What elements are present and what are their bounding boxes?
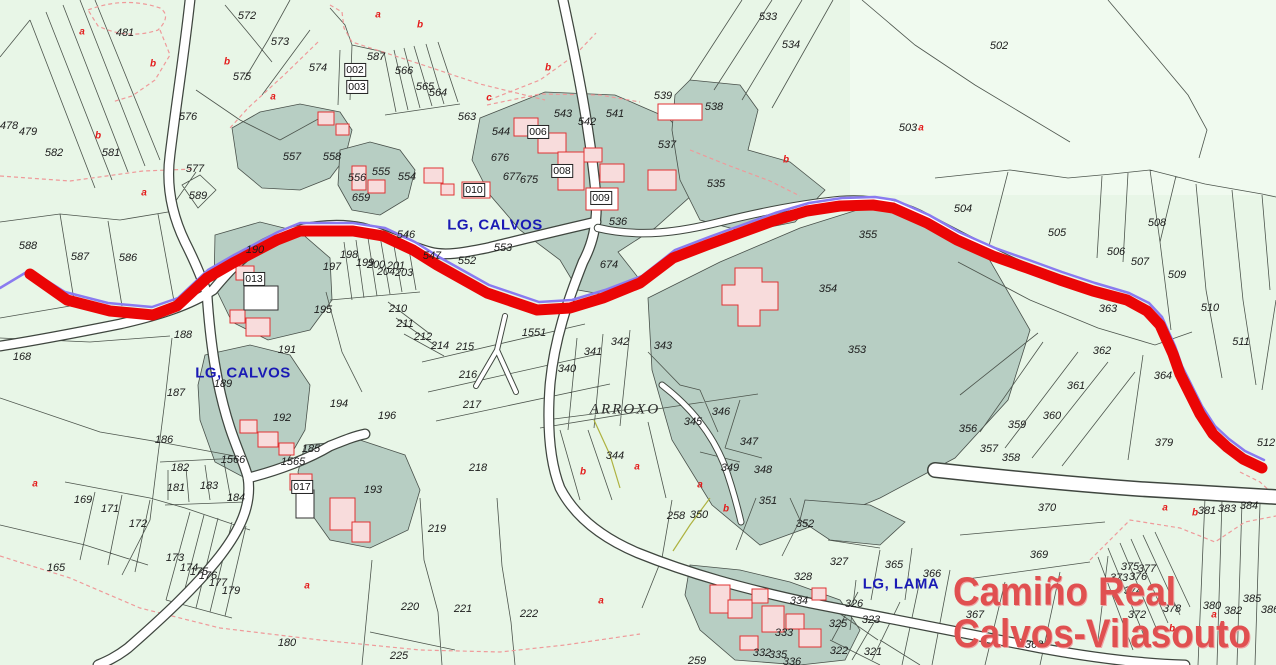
parcel-number: 582	[45, 147, 63, 159]
parcel-number: 173	[166, 552, 184, 564]
parcel-number: 217	[463, 399, 481, 411]
parcel-number: 1566	[221, 454, 245, 466]
building-number: 009	[590, 191, 612, 205]
parcel-number: 535	[707, 178, 725, 190]
parcel-number: 216	[459, 369, 477, 381]
parcel-number: 193	[364, 484, 382, 496]
parcel-number: 539	[654, 90, 672, 102]
parcel-number: 565	[416, 81, 434, 93]
parcel-number: 507	[1131, 256, 1149, 268]
parcel-number: 586	[119, 252, 137, 264]
parcel-number: 219	[428, 523, 446, 535]
parcel-number: 554	[398, 171, 416, 183]
parcel-number: 172	[129, 518, 147, 530]
route-title-line2: Calvos-Vilasouto	[953, 612, 1251, 657]
parcel-number: 510	[1201, 302, 1219, 314]
parcel-number: 381	[1198, 505, 1216, 517]
parcel-number: 171	[101, 503, 119, 515]
parcel-number: 572	[238, 10, 256, 22]
parcel-number: 192	[273, 412, 291, 424]
parcel-number: 587	[71, 251, 89, 263]
parcel-number: 534	[782, 39, 800, 51]
parcel-number: 175	[190, 566, 208, 578]
zone-letter: b	[150, 59, 156, 70]
parcel-number: 351	[759, 495, 777, 507]
parcel-number: 509	[1168, 269, 1186, 281]
parcel-number: 196	[378, 410, 396, 422]
parcel-number: 360	[1043, 410, 1061, 422]
parcel-number: 674	[600, 259, 618, 271]
zone-letter: b	[580, 467, 586, 478]
parcel-number: 333	[775, 627, 793, 639]
parcel-number: 353	[848, 344, 866, 356]
parcel-number: 346	[712, 406, 730, 418]
parcel-number: 502	[990, 40, 1008, 52]
parcel-number: 326	[845, 598, 863, 610]
parcel-number: 225	[390, 650, 408, 662]
parcel-number: 165	[47, 562, 65, 574]
parcel-number: 343	[654, 340, 672, 352]
map-labels-layer: 5725735745755765774814784795825815575585…	[0, 0, 1276, 665]
route-title-line1: Camiño Real	[953, 570, 1176, 615]
parcel-number: 221	[454, 603, 472, 615]
parcel-number: 204	[377, 266, 395, 278]
parcel-number: 505	[1048, 227, 1066, 239]
parcel-number: 344	[606, 450, 624, 462]
parcel-number: 356	[959, 423, 977, 435]
parcel-number: 577	[186, 163, 204, 175]
parcel-number: 184	[227, 492, 245, 504]
parcel-number: 564	[429, 87, 447, 99]
parcel-number: 321	[864, 646, 882, 658]
parcel-number: 1551	[522, 327, 546, 339]
building-number: 013	[243, 272, 265, 286]
parcel-number: 558	[323, 151, 341, 163]
parcel-number: 675	[520, 174, 538, 186]
parcel-number: 185	[302, 443, 320, 455]
parcel-number: 258	[667, 510, 685, 522]
parcel-number: 365	[885, 559, 903, 571]
parcel-number: 537	[658, 139, 676, 151]
parcel-number: 334	[790, 595, 808, 607]
parcel-number: 506	[1107, 246, 1125, 258]
zone-letter: a	[634, 462, 640, 473]
parcel-number: 259	[688, 655, 706, 665]
parcel-number: 542	[578, 116, 596, 128]
zone-letter: b	[95, 131, 101, 142]
parcel-number: 541	[606, 108, 624, 120]
building-number: 003	[346, 80, 368, 94]
parcel-number: 187	[167, 387, 185, 399]
zone-letter: a	[918, 123, 924, 134]
parcel-number: 212	[414, 331, 432, 343]
parcel-number: 177	[209, 577, 227, 589]
building-number: 017	[291, 480, 313, 494]
parcel-number: 659	[352, 192, 370, 204]
parcel-number: 575	[233, 71, 251, 83]
zone-letter: b	[1192, 508, 1198, 519]
parcel-number: 345	[684, 416, 702, 428]
parcel-number: 201	[387, 260, 405, 272]
parcel-number: 215	[456, 341, 474, 353]
parcel-number: 589	[189, 190, 207, 202]
parcel-number: 197	[323, 261, 341, 273]
cadastral-map: 5725735745755765774814784795825815575585…	[0, 0, 1276, 665]
parcel-number: 210	[389, 303, 407, 315]
parcel-number: 576	[179, 111, 197, 123]
parcel-number: 566	[395, 65, 413, 77]
parcel-number: 352	[796, 518, 814, 530]
parcel-number: 328	[794, 571, 812, 583]
parcel-number: 325	[829, 618, 847, 630]
parcel-number: 189	[214, 378, 232, 390]
parcel-number: 180	[278, 637, 296, 649]
parcel-number: 348	[754, 464, 772, 476]
parcel-number: 198	[340, 249, 358, 261]
zone-letter: b	[723, 504, 729, 515]
parcel-number: 544	[492, 126, 510, 138]
parcel-number: 588	[19, 240, 37, 252]
zone-letter: c	[486, 93, 492, 104]
parcel-number: 362	[1093, 345, 1111, 357]
parcel-number: 677	[503, 171, 521, 183]
parcel-number: 481	[116, 27, 134, 39]
parcel-number: 366	[923, 568, 941, 580]
building-number: 002	[344, 63, 366, 77]
parcel-number: 332	[753, 647, 771, 659]
parcel-number: 335	[769, 649, 787, 661]
parcel-number: 347	[740, 436, 758, 448]
parcel-number: 211	[396, 318, 414, 330]
parcel-number: 191	[278, 344, 296, 356]
parcel-number: 478	[0, 120, 18, 132]
zone-letter: a	[375, 10, 381, 21]
building-number: 006	[527, 125, 549, 139]
parcel-number: 354	[819, 283, 837, 295]
parcel-number: 369	[1030, 549, 1048, 561]
parcel-number: 547	[423, 250, 441, 262]
parcel-number: 195	[314, 304, 332, 316]
parcel-number: 218	[469, 462, 487, 474]
parcel-number: 380	[1203, 600, 1221, 612]
place-label: LG, CALVOS	[195, 365, 291, 382]
zone-letter: a	[697, 480, 703, 491]
parcel-number: 536	[609, 216, 627, 228]
parcel-number: 508	[1148, 217, 1166, 229]
parcel-number: 581	[102, 147, 120, 159]
parcel-number: 361	[1067, 380, 1085, 392]
zone-letter: a	[79, 27, 85, 38]
place-label: LG, LAMA	[863, 576, 940, 593]
parcel-number: 587	[367, 51, 385, 63]
parcel-number: 188	[174, 329, 192, 341]
zone-letter: a	[32, 479, 38, 490]
parcel-number: 322	[830, 645, 848, 657]
parcel-number: 538	[705, 101, 723, 113]
parcel-number: 336	[783, 656, 801, 665]
parcel-number: 174	[180, 562, 198, 574]
parcel-number: 370	[1038, 502, 1056, 514]
parcel-number: 512	[1257, 437, 1275, 449]
zone-letter: b	[417, 20, 423, 31]
parcel-number: 194	[330, 398, 348, 410]
parcel-number: 503	[899, 122, 917, 134]
parcel-number: 349	[721, 462, 739, 474]
zone-letter: a	[304, 581, 310, 592]
parcel-number: 385	[1243, 593, 1261, 605]
parcel-number: 364	[1154, 370, 1172, 382]
parcel-number: 350	[690, 509, 708, 521]
parcel-number: 676	[491, 152, 509, 164]
zone-letter: b	[545, 63, 551, 74]
parcel-number: 340	[558, 363, 576, 375]
zone-letter: a	[141, 188, 147, 199]
parcel-number: 181	[167, 482, 185, 494]
parcel-number: 383	[1218, 503, 1236, 515]
place-label: LG, CALVOS	[447, 217, 543, 234]
parcel-number: 379	[1155, 437, 1173, 449]
parcel-number: 358	[1002, 452, 1020, 464]
parcel-number: 573	[271, 36, 289, 48]
parcel-number: 546	[397, 229, 415, 241]
parcel-number: 363	[1099, 303, 1117, 315]
parcel-number: 186	[155, 434, 173, 446]
parcel-number: 386	[1261, 604, 1276, 616]
zone-letter: a	[270, 92, 276, 103]
building-number: 008	[551, 164, 573, 178]
zone-letter: b	[783, 155, 789, 166]
zone-letter: b	[224, 57, 230, 68]
parcel-number: 357	[980, 443, 998, 455]
parcel-number: 1565	[281, 456, 305, 468]
parcel-number: 190	[246, 244, 264, 256]
parcel-number: 169	[74, 494, 92, 506]
parcel-number: 168	[13, 351, 31, 363]
parcel-number: 341	[584, 346, 602, 358]
parcel-number: 574	[309, 62, 327, 74]
building-number: 010	[463, 183, 485, 197]
parcel-number: 504	[954, 203, 972, 215]
parcel-number: 533	[759, 11, 777, 23]
parcel-number: 222	[520, 608, 538, 620]
parcel-number: 553	[494, 242, 512, 254]
toponym-label: ARROXO	[590, 402, 660, 419]
parcel-number: 327	[830, 556, 848, 568]
parcel-number: 557	[283, 151, 301, 163]
parcel-number: 556	[348, 172, 366, 184]
parcel-number: 359	[1008, 419, 1026, 431]
parcel-number: 323	[862, 614, 880, 626]
zone-letter: a	[1162, 503, 1168, 514]
parcel-number: 199	[356, 257, 374, 269]
parcel-number: 200	[367, 259, 385, 271]
parcel-number: 203	[395, 267, 413, 279]
parcel-number: 182	[171, 462, 189, 474]
parcel-number: 179	[222, 585, 240, 597]
parcel-number: 511	[1232, 336, 1250, 348]
parcel-number: 552	[458, 255, 476, 267]
parcel-number: 563	[458, 111, 476, 123]
parcel-number: 342	[611, 336, 629, 348]
parcel-number: 384	[1240, 500, 1258, 512]
parcel-number: 543	[554, 108, 572, 120]
parcel-number: 555	[372, 166, 390, 178]
parcel-number: 176	[199, 570, 217, 582]
parcel-number: 220	[401, 601, 419, 613]
parcel-number: 183	[200, 480, 218, 492]
parcel-number: 214	[431, 340, 449, 352]
zone-letter: a	[598, 596, 604, 607]
parcel-number: 479	[19, 126, 37, 138]
parcel-number: 355	[859, 229, 877, 241]
